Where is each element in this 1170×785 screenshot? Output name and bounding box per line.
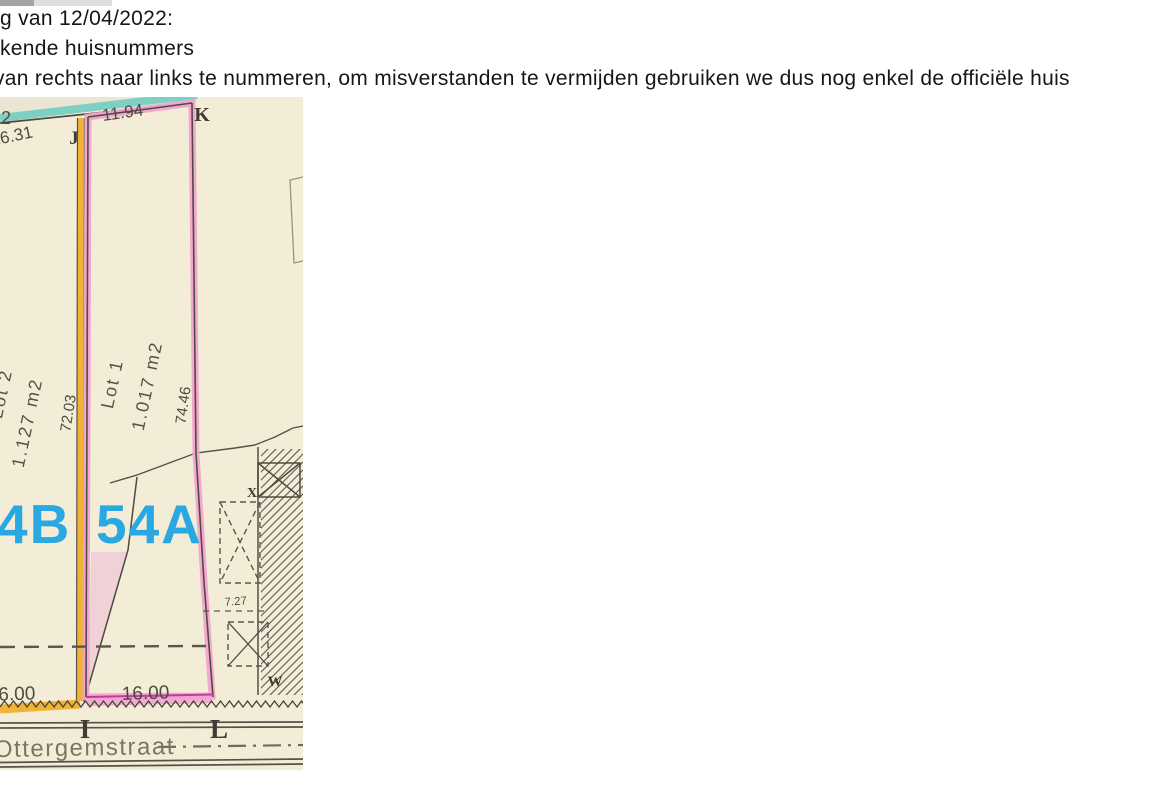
point-label-W: W	[268, 674, 283, 690]
point-label-L: L	[210, 714, 228, 744]
point-label-J: J	[69, 128, 79, 149]
building-line-dashed	[0, 646, 206, 647]
frontage-label-lot1: 16.00	[121, 682, 169, 705]
point-label-K: K	[194, 104, 210, 126]
doc-text-line-1: g van 12/04/2022:	[0, 6, 173, 32]
cadastral-map: Lot 2 1.127 m2 72.03 Lot 1 1.017 m2 74.4…	[0, 97, 303, 770]
doc-text-line-2: kende huisnummers	[0, 36, 194, 62]
map-svg: Lot 2 1.127 m2 72.03 Lot 1 1.017 m2 74.4…	[0, 97, 303, 770]
page: g van 12/04/2022: kende huisnummers van …	[0, 0, 1170, 785]
building-gap-label: 7.27	[224, 595, 247, 609]
house-number-54A: 54A	[96, 493, 203, 555]
point-label-X: X	[247, 486, 257, 501]
doc-text-line-3: van rechts naar links te nummeren, om mi…	[0, 66, 1070, 92]
house-number-54B: 4B	[0, 493, 71, 555]
frontage-label-lot2: 16.00	[0, 683, 36, 706]
top-left-partial-label: 2	[1, 108, 11, 128]
street-name-label: Ottergemstraat	[0, 733, 175, 763]
